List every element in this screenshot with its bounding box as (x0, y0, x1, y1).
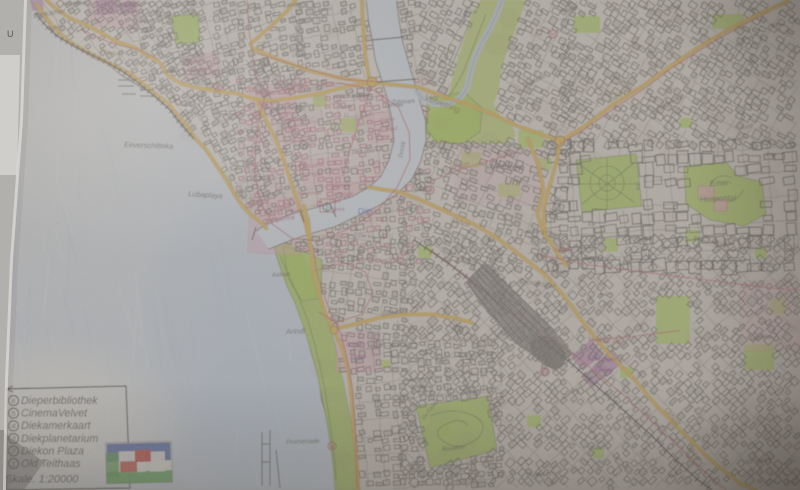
svg-text:U: U (7, 29, 14, 39)
